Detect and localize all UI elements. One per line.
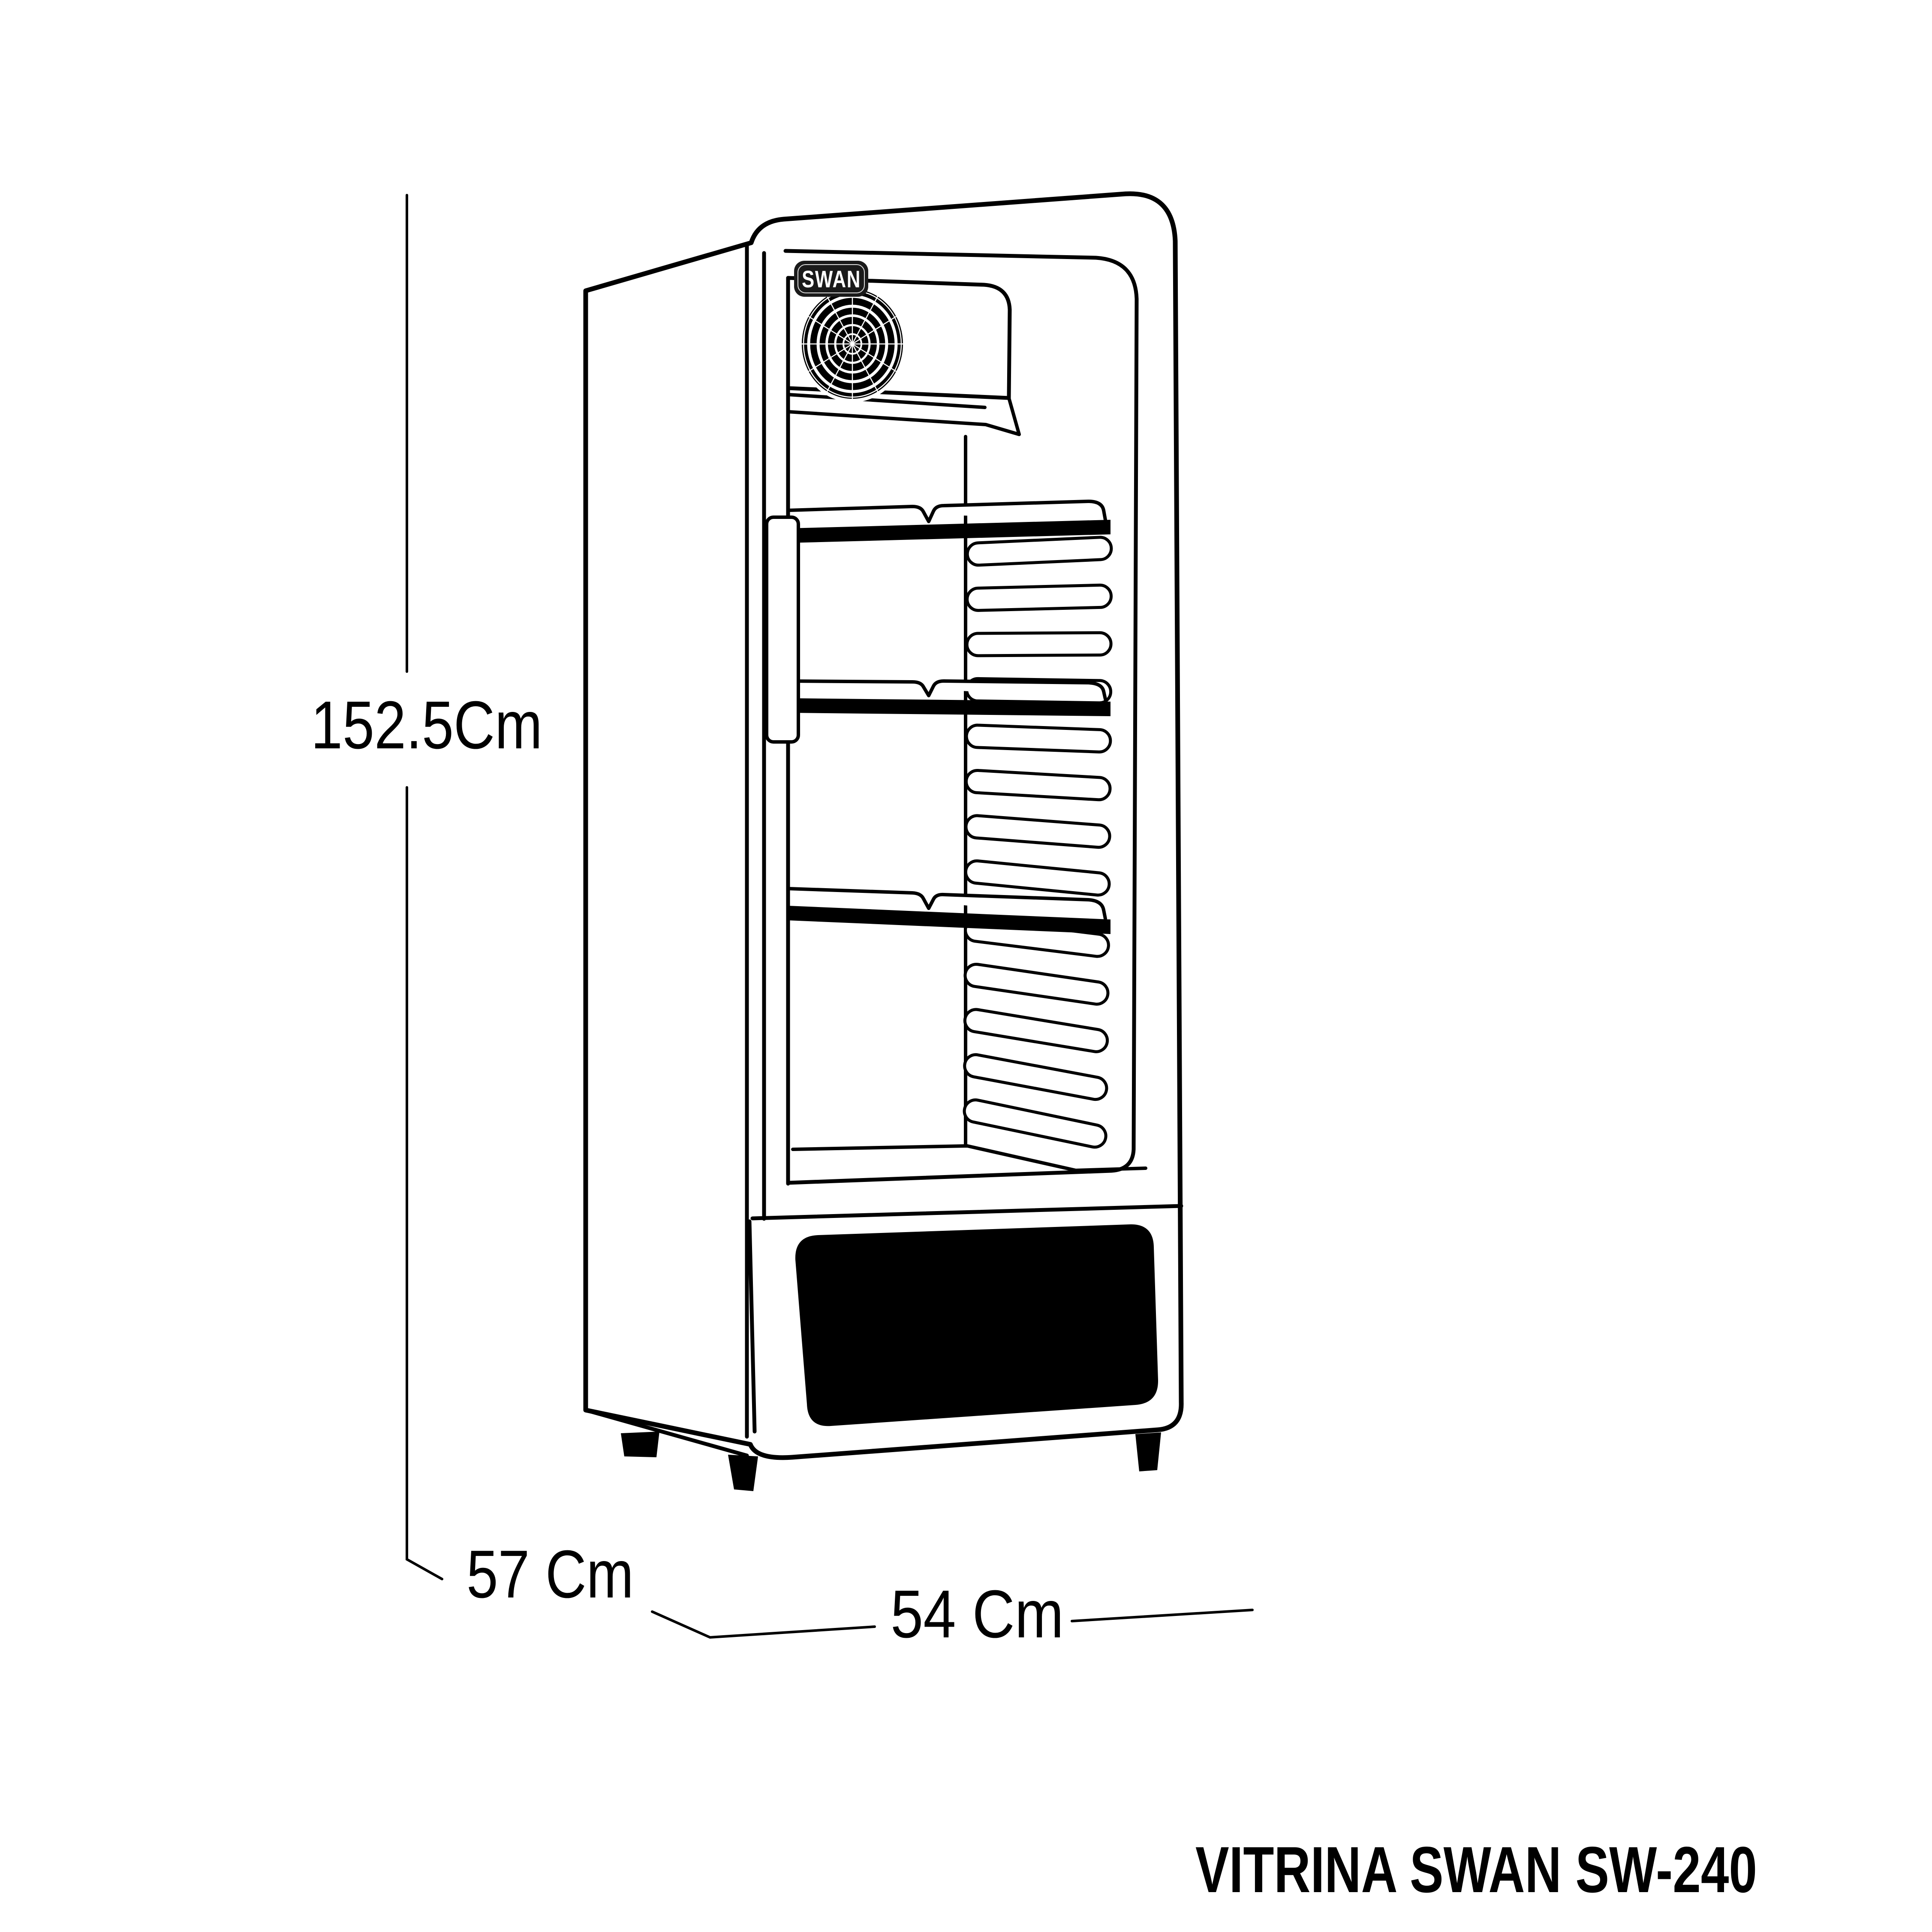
width-dimension-label: 54 Cm <box>891 1576 1064 1652</box>
product-title: VITRINA SWAN SW-240 <box>1195 1833 1757 1906</box>
brand-badge: SWAN <box>794 261 868 297</box>
depth-dimension-label: 57 Cm <box>466 1537 634 1612</box>
fan-icon <box>800 287 905 401</box>
vent-slot <box>967 633 1111 656</box>
width-dimension-line <box>1072 1610 1252 1621</box>
vent-slot <box>967 585 1111 611</box>
fridge-foot-front-right <box>1135 1432 1161 1471</box>
door-handle <box>767 517 798 742</box>
product-dimension-diagram: SWAN 152.5Cm 57 Cm 54 Cm VITRINA SWAN SW… <box>0 0 1932 1932</box>
height-dimension-label: 152.5Cm <box>311 687 542 763</box>
fridge-foot-front-left <box>728 1455 758 1491</box>
vent-slot <box>966 725 1111 752</box>
fridge-foot-back-left <box>621 1432 659 1457</box>
depth-dimension-line <box>652 1612 875 1637</box>
display-fridge-illustration: SWAN <box>586 194 1181 1491</box>
brand-badge-label: SWAN <box>802 265 861 292</box>
kick-panel <box>795 1224 1158 1426</box>
height-dimension-line-lower <box>407 787 442 1579</box>
vent-slot <box>967 537 1112 566</box>
